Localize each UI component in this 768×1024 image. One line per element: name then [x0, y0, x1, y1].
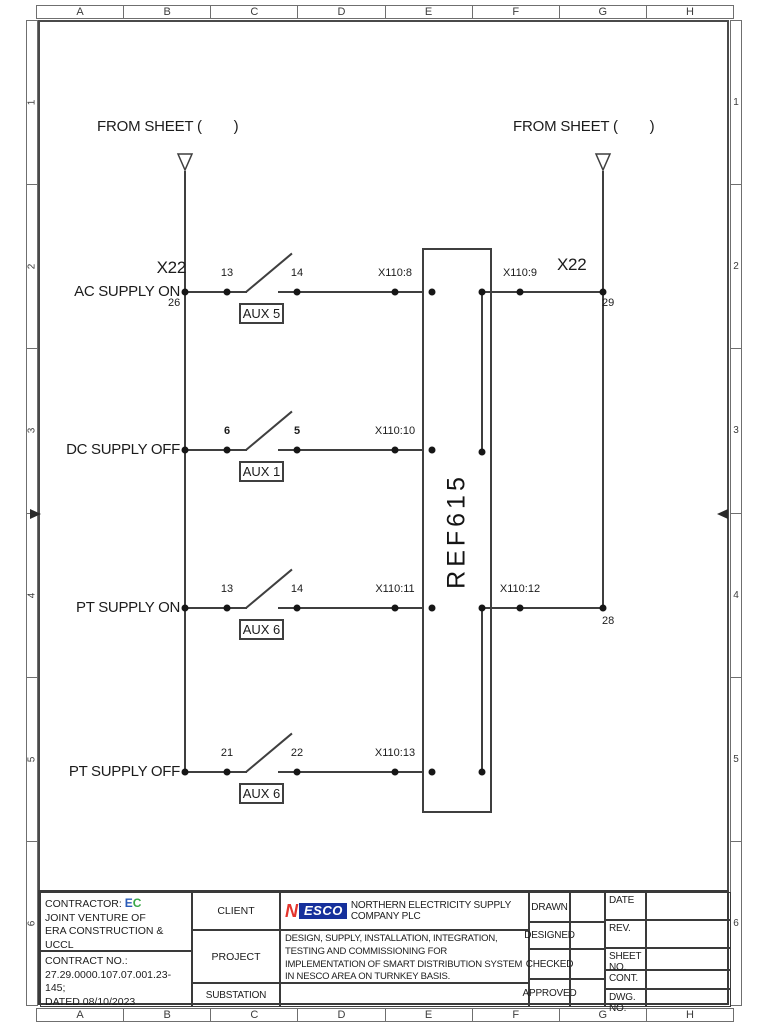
junction-dot — [294, 447, 301, 454]
dwg-no-value-cell — [646, 989, 731, 1007]
junction-dot — [429, 447, 436, 454]
terminal-name: X22 — [152, 258, 186, 278]
nesco-logo-box: ESCO — [299, 903, 347, 919]
contract-dated: DATED 08/10/2023 — [45, 996, 187, 1010]
substation-label-text: SUBSTATION — [206, 990, 266, 1001]
wire — [185, 291, 247, 293]
junction-dot — [600, 289, 607, 296]
pin-number: 6 — [224, 425, 230, 437]
grid-col-label: E — [386, 1009, 473, 1021]
aux-contact-label: AUX 5 — [243, 306, 281, 321]
row-label: PT SUPPLY ON — [76, 599, 180, 616]
junction-dot — [429, 605, 436, 612]
wire — [482, 607, 603, 609]
drawn-value-cell — [570, 892, 605, 922]
terminal-name: X22 — [557, 255, 586, 275]
grid-col-label: G — [560, 1009, 647, 1021]
rev-label: REV. — [605, 920, 646, 948]
junction-dot — [600, 605, 607, 612]
wire — [185, 607, 247, 609]
grid-row-label-text: 1 — [27, 100, 38, 106]
terminal-pin: 29 — [602, 297, 614, 309]
contract-number-cell: CONTRACT NO.: 27.29.0000.107.07.001.23-1… — [40, 951, 192, 1007]
aux-contact-box: AUX 6 — [239, 619, 284, 640]
from-sheet-reference-left: FROM SHEET ( ) — [97, 118, 238, 135]
incoming-feed-arrow-icon — [594, 153, 612, 171]
row-label: PT SUPPLY OFF — [69, 763, 180, 780]
junction-dot — [182, 289, 189, 296]
contact-blade — [245, 733, 292, 773]
wire-tag: X110:10 — [375, 425, 415, 437]
center-mark-right-icon — [717, 509, 728, 519]
date-label: DATE — [605, 892, 646, 920]
junction-dot — [517, 289, 524, 296]
project-description-text: DESIGN, SUPPLY, INSTALLATION, INTEGRATIO… — [285, 933, 522, 982]
project-label-text: PROJECT — [211, 951, 260, 963]
circuit-row-pt-supply-off: PT SUPPLY OFF 21 22 X110:13 AUX 6 — [0, 722, 768, 822]
contract-no-label: CONTRACT NO.: — [45, 955, 187, 969]
approved-label: APPROVED — [529, 979, 570, 1007]
grid-row-label: 1 — [731, 21, 741, 185]
center-mark-left-icon — [30, 509, 41, 519]
grid-row-label-text: 6 — [27, 921, 38, 927]
checked-label-text: CHECKED — [526, 959, 574, 970]
grid-col-label: D — [298, 6, 385, 18]
incoming-feed-arrow-icon — [176, 153, 194, 171]
grid-col-label: E — [386, 6, 473, 18]
junction-dot — [224, 769, 231, 776]
sheet-no-label: SHEET NO. — [605, 948, 646, 970]
contractor-line1: CONTRACTOR: EC — [45, 896, 187, 912]
terminal-pin: 28 — [602, 615, 614, 627]
row-label: DC SUPPLY OFF — [66, 441, 180, 458]
grid-col-label: B — [124, 6, 211, 18]
junction-dot — [294, 289, 301, 296]
aux-contact-box: AUX 5 — [239, 303, 284, 324]
junction-dot — [392, 289, 399, 296]
wire — [482, 291, 603, 293]
terminal-pin: 26 — [168, 297, 180, 309]
grid-band-right: 1 2 3 4 5 6 — [730, 20, 742, 1006]
grid-col-label: F — [473, 6, 560, 18]
junction-dot — [182, 447, 189, 454]
pin-number: 21 — [221, 747, 233, 759]
grid-col-label: A — [37, 6, 124, 18]
junction-dot — [224, 605, 231, 612]
sheet-no-value-cell — [646, 948, 731, 970]
grid-col-label: H — [647, 6, 733, 18]
checked-value-cell — [570, 949, 605, 979]
junction-dot — [517, 605, 524, 612]
grid-row-label: 6 — [731, 842, 741, 1005]
junction-dot — [392, 769, 399, 776]
drawing-sheet: A B C D E F G H A B C D E F G H 1 2 3 4 … — [0, 0, 768, 1024]
cont-label-text: CONT. — [609, 973, 638, 984]
junction-dot — [182, 769, 189, 776]
grid-col-label: A — [37, 1009, 124, 1021]
junction-dot — [294, 769, 301, 776]
wire-tag: X110:8 — [378, 267, 412, 279]
contractor-line2: JOINT VENTURE OF — [45, 912, 187, 926]
date-label-text: DATE — [609, 895, 634, 906]
wire-tag: X110:13 — [375, 747, 415, 759]
contact-blade — [245, 411, 292, 451]
approved-label-text: APPROVED — [523, 988, 577, 999]
junction-dot — [479, 605, 486, 612]
wire — [185, 771, 247, 773]
contract-no-value: 27.29.0000.107.07.001.23-145; — [45, 969, 187, 996]
project-description-cell: DESIGN, SUPPLY, INSTALLATION, INTEGRATIO… — [280, 930, 529, 983]
grid-row-label: 6 — [27, 842, 37, 1005]
approved-value-cell — [570, 979, 605, 1007]
grid-col-label: F — [473, 1009, 560, 1021]
junction-dot — [479, 289, 486, 296]
contractor-label: CONTRACTOR: — [45, 898, 122, 910]
junction-dot — [429, 769, 436, 776]
junction-dot — [182, 605, 189, 612]
wire-tag: X110:11 — [375, 583, 414, 595]
pin-number: 13 — [221, 267, 233, 279]
circuit-row-ac-supply-on: X22 AC SUPPLY ON 26 13 14 X110:8 X110:9 … — [0, 242, 768, 342]
junction-dot — [392, 447, 399, 454]
client-label-text: CLIENT — [217, 905, 254, 917]
cont-label: CONT. — [605, 970, 646, 989]
junction-dot — [224, 447, 231, 454]
pin-number: 5 — [294, 425, 300, 437]
grid-col-label: D — [298, 1009, 385, 1021]
wire-tag: X110:9 — [503, 267, 537, 279]
ec-logo: E — [125, 896, 133, 910]
project-row-label: PROJECT — [192, 930, 280, 983]
contractor-cell: CONTRACTOR: EC JOINT VENTURE OF ERA CONS… — [40, 892, 192, 951]
drawn-label: DRAWN — [529, 892, 570, 922]
wire — [185, 449, 247, 451]
drawing-border — [38, 20, 729, 1005]
aux-contact-label: AUX 6 — [243, 622, 281, 637]
substation-value-cell — [280, 983, 529, 1007]
aux-contact-box: AUX 1 — [239, 461, 284, 482]
aux-contact-label: AUX 1 — [243, 464, 281, 479]
circuit-row-dc-supply-off: DC SUPPLY OFF 6 5 X110:10 AUX 1 — [0, 400, 768, 500]
pin-number: 13 — [221, 583, 233, 595]
contact-blade — [245, 569, 292, 609]
grid-col-label: C — [211, 1009, 298, 1021]
checked-label: CHECKED — [529, 949, 570, 979]
cont-value-cell — [646, 970, 731, 989]
junction-dot — [392, 605, 399, 612]
junction-dot — [429, 289, 436, 296]
designed-label-text: DESIGNED — [524, 930, 575, 941]
grid-col-label: G — [560, 6, 647, 18]
designed-value-cell — [570, 922, 605, 949]
client-company-name: NORTHERN ELECTRICITY SUPPLY COMPANY PLC — [351, 900, 524, 922]
date-value-cell — [646, 892, 731, 920]
client-row-label: CLIENT — [192, 892, 280, 930]
drawn-label-text: DRAWN — [531, 902, 567, 913]
pin-number: 14 — [291, 583, 303, 595]
grid-band-bottom: A B C D E F G H — [36, 1008, 734, 1022]
client-value-cell: N ESCO NORTHERN ELECTRICITY SUPPLY COMPA… — [280, 892, 529, 930]
nesco-logo-n: N — [285, 902, 298, 920]
right-bus-wire — [602, 171, 604, 610]
ec-logo: C — [133, 896, 142, 910]
grid-col-label: C — [211, 6, 298, 18]
dwg-no-label: DWG. NO. — [605, 989, 646, 1007]
pin-number: 22 — [291, 747, 303, 759]
substation-row-label: SUBSTATION — [192, 983, 280, 1007]
grid-band-top: A B C D E F G H — [36, 5, 734, 19]
wire-tag: X110:12 — [500, 583, 540, 595]
contractor-line3: ERA CONSTRUCTION & UCCL — [45, 925, 187, 952]
junction-dot — [224, 289, 231, 296]
grid-col-label: H — [647, 1009, 733, 1021]
circuit-row-pt-supply-on: PT SUPPLY ON 13 14 X110:11 X110:12 28 AU… — [0, 558, 768, 658]
rev-label-text: REV. — [609, 923, 631, 934]
grid-row-label: 1 — [27, 21, 37, 185]
contact-blade — [245, 253, 292, 293]
rev-value-cell — [646, 920, 731, 948]
pin-number: 14 — [291, 267, 303, 279]
grid-col-label: B — [124, 1009, 211, 1021]
aux-contact-label: AUX 6 — [243, 786, 281, 801]
title-block: CONTRACTOR: EC JOINT VENTURE OF ERA CONS… — [38, 890, 729, 1005]
from-sheet-reference-right: FROM SHEET ( ) — [513, 118, 654, 135]
junction-dot — [294, 605, 301, 612]
row-label: AC SUPPLY ON — [74, 283, 180, 300]
designed-label: DESIGNED — [529, 922, 570, 949]
aux-contact-box: AUX 6 — [239, 783, 284, 804]
